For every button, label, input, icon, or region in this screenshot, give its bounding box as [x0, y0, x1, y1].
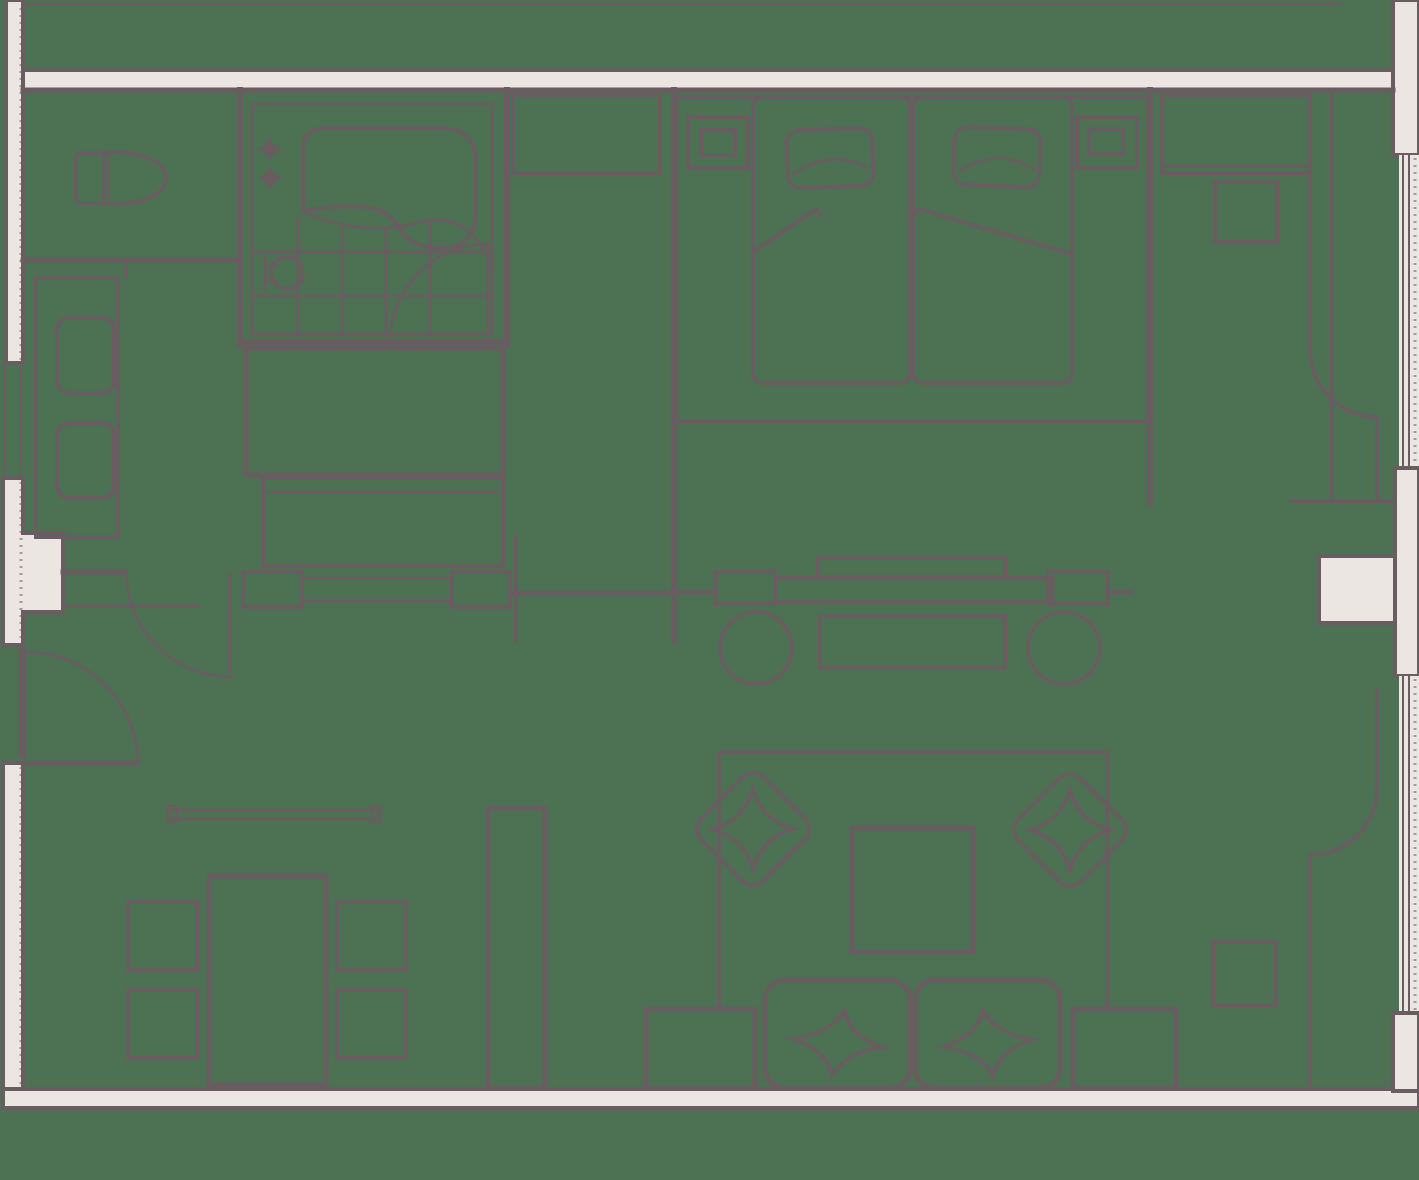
right-wall-bottom-column [1393, 1013, 1419, 1091]
top-wall-band [23, 70, 1393, 90]
floor-plan-drawing [0, 0, 1419, 1180]
right-wall-mid-pier [1395, 468, 1419, 676]
left-wall-column [6, 0, 23, 363]
door-leaf [19, 648, 26, 758]
right-wall-top-column [1393, 0, 1419, 155]
bottom-wall-band [3, 1089, 1419, 1108]
window [1399, 676, 1419, 1013]
right-t-pier [1319, 556, 1395, 623]
floor-plan [0, 0, 1419, 1180]
